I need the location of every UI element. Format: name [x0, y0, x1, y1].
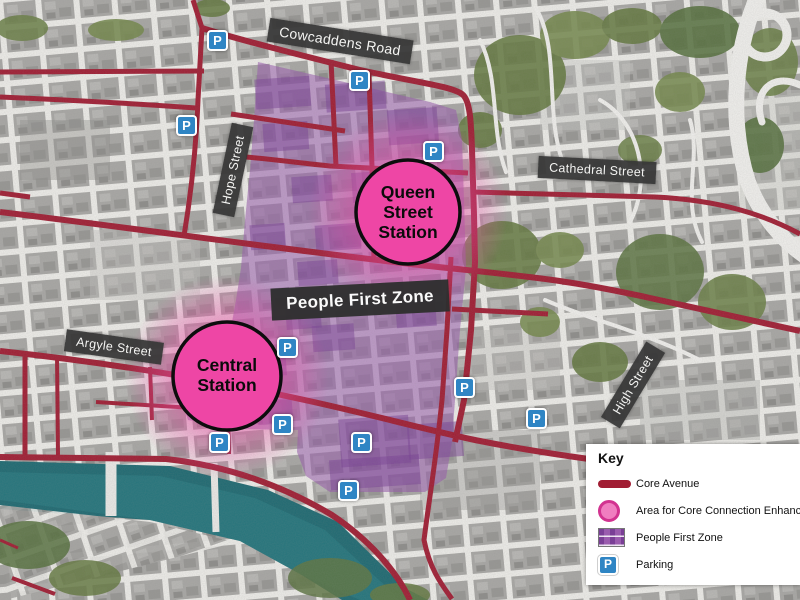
core-avenue-swatch [598, 480, 631, 488]
legend-item-label: Parking [636, 559, 673, 571]
parking-icon: P [351, 432, 372, 453]
legend-item-parking: P Parking [598, 551, 800, 578]
parking-icon: P [207, 30, 228, 51]
legend-item-core-avenue: Core Avenue [598, 470, 800, 497]
legend-item-people-first-zone: People First Zone [598, 524, 800, 551]
legend-item-label: Area for Core Connection Enhancement [636, 505, 800, 517]
map-image: Queen Street Station Central Station Cow… [0, 0, 800, 600]
parking-icon: P [349, 70, 370, 91]
enhancement-area-swatch [598, 500, 620, 522]
parking-icon: P [526, 408, 547, 429]
legend-item-label: Core Avenue [636, 478, 699, 490]
legend-item-label: People First Zone [636, 532, 723, 544]
people-first-zone-swatch [598, 528, 625, 547]
parking-swatch: P [598, 555, 618, 575]
legend-item-enhancement-area: Area for Core Connection Enhancement [598, 497, 800, 524]
parking-icon: P [277, 337, 298, 358]
parking-icon: P [338, 480, 359, 501]
parking-icon: P [176, 115, 197, 136]
legend: Key Core Avenue Area for Core Connection… [586, 444, 800, 585]
central-station-label: Central Station [157, 356, 297, 396]
parking-icon: P [423, 141, 444, 162]
legend-title: Key [598, 450, 800, 466]
queen-street-station-label: Queen Street Station [338, 183, 478, 242]
parking-icon: P [272, 414, 293, 435]
parking-icon: P [454, 377, 475, 398]
parking-icon: P [209, 432, 230, 453]
